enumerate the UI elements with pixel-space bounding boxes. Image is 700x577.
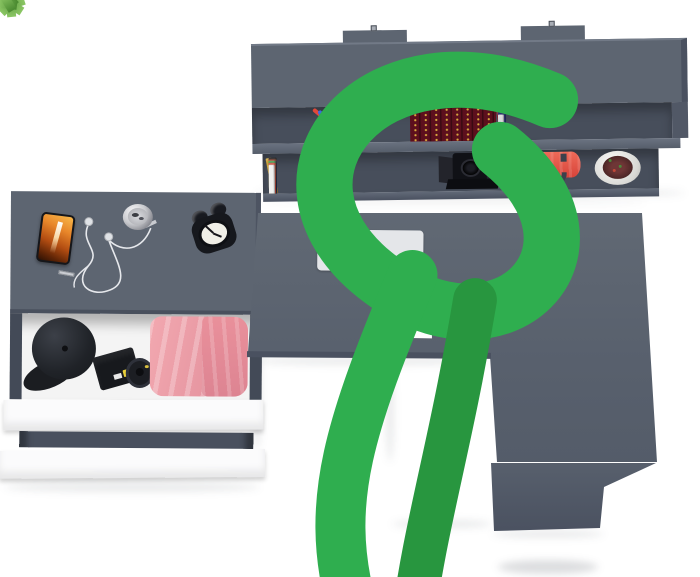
room-scene	[0, 0, 700, 577]
green-rope	[0, 0, 700, 577]
shadow	[498, 560, 598, 574]
